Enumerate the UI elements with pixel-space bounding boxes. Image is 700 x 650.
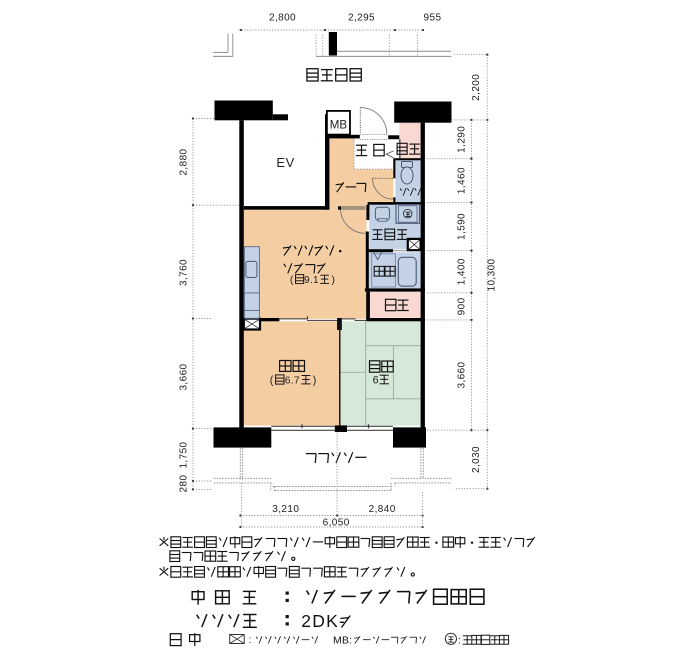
svg-text:6: 6 [373, 375, 379, 387]
svg-text:2DK-: 2DK- [301, 611, 346, 631]
svg-text:MB:: MB: [333, 635, 352, 647]
svg-text:1,590: 1,590 [457, 213, 468, 240]
svg-text:900: 900 [457, 297, 468, 315]
svg-text:MB: MB [330, 120, 348, 132]
svg-text::: : [458, 636, 461, 647]
svg-text:2,200: 2,200 [471, 74, 482, 101]
svg-text:1,290: 1,290 [457, 126, 468, 153]
svg-text:): ) [332, 274, 336, 286]
svg-text:2,840: 2,840 [369, 504, 396, 515]
svg-text:1,750: 1,750 [179, 441, 190, 468]
svg-text:3,660: 3,660 [457, 361, 468, 388]
svg-text:3,660: 3,660 [179, 363, 190, 390]
svg-text:2,295: 2,295 [348, 13, 375, 24]
svg-text:6,050: 6,050 [323, 518, 350, 529]
svg-text::: : [249, 635, 252, 646]
svg-text:9.1: 9.1 [304, 275, 319, 286]
svg-text:(: ( [290, 274, 294, 286]
svg-text:2,030: 2,030 [471, 446, 482, 473]
svg-text:3,210: 3,210 [272, 504, 299, 515]
svg-text:3,760: 3,760 [179, 259, 190, 286]
svg-text:955: 955 [424, 13, 442, 24]
svg-text:1,460: 1,460 [457, 167, 468, 194]
svg-text:1,400: 1,400 [457, 258, 468, 285]
svg-text:EV: EV [276, 155, 294, 170]
svg-text:6.7: 6.7 [285, 376, 300, 387]
svg-text:2,800: 2,800 [269, 13, 296, 24]
svg-text:2,880: 2,880 [179, 148, 190, 175]
svg-text:(: ( [270, 375, 274, 387]
svg-text:280: 280 [179, 475, 190, 493]
svg-text:): ) [313, 375, 317, 387]
svg-text:10,300: 10,300 [487, 258, 498, 291]
